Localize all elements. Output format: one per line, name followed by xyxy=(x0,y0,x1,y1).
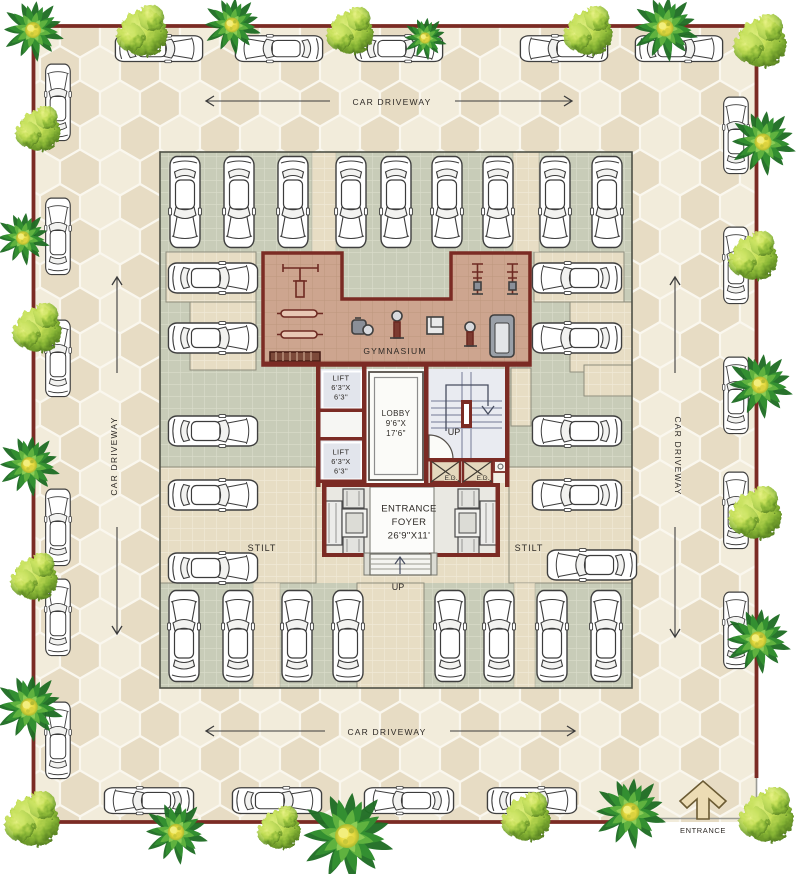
svg-text:STILT: STILT xyxy=(248,543,277,553)
svg-text:GYMNASIUM: GYMNASIUM xyxy=(363,346,426,356)
svg-text:26'9"X11': 26'9"X11' xyxy=(388,531,431,542)
svg-text:E.D.: E.D. xyxy=(445,475,458,482)
svg-text:6'3": 6'3" xyxy=(334,467,348,476)
svg-text:LIFT: LIFT xyxy=(332,447,349,456)
svg-text:FOYER: FOYER xyxy=(392,517,427,528)
svg-text:LIFT: LIFT xyxy=(332,373,349,382)
svg-text:CAR DRIVEWAY: CAR DRIVEWAY xyxy=(673,416,683,495)
svg-text:CAR DRIVEWAY: CAR DRIVEWAY xyxy=(109,416,119,495)
svg-text:UP: UP xyxy=(392,582,405,592)
svg-text:CAR DRIVEWAY: CAR DRIVEWAY xyxy=(347,727,426,737)
svg-text:STILT: STILT xyxy=(515,543,544,553)
svg-text:6'3"X: 6'3"X xyxy=(331,383,350,392)
svg-text:17'6": 17'6" xyxy=(386,429,406,438)
svg-text:LOBBY: LOBBY xyxy=(382,409,411,418)
svg-text:6'3"X: 6'3"X xyxy=(331,457,350,466)
svg-text:CAR DRIVEWAY: CAR DRIVEWAY xyxy=(352,97,431,107)
svg-text:E.D.: E.D. xyxy=(477,475,490,482)
svg-text:6'3": 6'3" xyxy=(334,393,348,402)
svg-text:9'6"X: 9'6"X xyxy=(386,419,407,428)
svg-text:ENTRANCE: ENTRANCE xyxy=(381,504,436,515)
svg-text:UP: UP xyxy=(448,427,461,437)
svg-text:ENTRANCE: ENTRANCE xyxy=(680,826,726,835)
